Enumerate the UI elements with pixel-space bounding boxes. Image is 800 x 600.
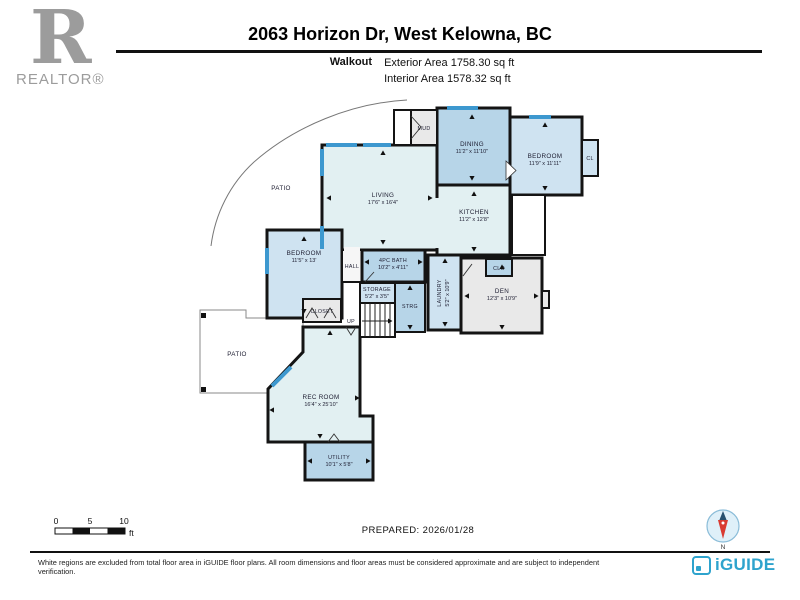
room-dims-utility: 10'1" x 5'8"	[325, 462, 352, 468]
room-label-living: LIVING	[372, 192, 394, 199]
room-label-bedroom-lower: BEDROOM	[287, 250, 322, 257]
room-bath: 4PC BATH 10'2" x 4'11"	[362, 250, 425, 282]
excluded-area-right-of-kitchen	[512, 195, 545, 255]
room-dims-rec: 16'4" x 25'10"	[304, 402, 337, 408]
room-bedroom-upper: BEDROOM 11'9" x 11'11"	[510, 117, 582, 195]
room-mud: MUD	[411, 110, 437, 145]
room-label-strg: STRG	[402, 304, 418, 310]
footer-divider	[30, 551, 770, 553]
prepared-date: PREPARED: 2026/01/28	[18, 525, 800, 536]
room-label-bath: 4PC BATH	[379, 258, 407, 264]
room-dims-kitchen: 11'2" x 12'8"	[459, 217, 489, 223]
room-dims-bath: 10'2" x 4'11"	[378, 265, 408, 271]
room-dims-bedroom-lower: 11'5" x 13'	[292, 258, 317, 264]
room-label-patio-lower: PATIO	[227, 351, 246, 358]
room-dining: DINING 11'2" x 11'10"	[437, 108, 510, 185]
room-dims-bedroom-upper: 11'9" x 11'11"	[529, 161, 561, 167]
iguide-logo-text: iGUIDE	[715, 555, 775, 575]
compass-north-label: N	[721, 544, 726, 551]
room-label-bedroom-upper: BEDROOM	[528, 153, 563, 160]
room-label-kitchen: KITCHEN	[459, 209, 489, 216]
room-dims-storage: 5'2" x 3'5"	[365, 294, 389, 300]
room-label-laundry: LAUNDRY	[437, 279, 443, 306]
entry-excluded-area	[394, 110, 411, 145]
room-hall: HALL	[342, 250, 362, 282]
room-label-storage: STORAGE	[363, 287, 391, 293]
room-dims-den: 12'3" x 10'9"	[487, 296, 517, 302]
room-label-hall: HALL	[345, 264, 359, 270]
room-label-rec: REC ROOM	[302, 394, 339, 401]
room-dims-living: 17'6" x 16'4"	[368, 200, 398, 206]
room-label-utility: UTILITY	[328, 455, 350, 461]
room-label-dining: DINING	[460, 141, 484, 148]
iguide-logo: iGUIDE	[692, 555, 775, 575]
room-label-cl: CL	[586, 156, 593, 162]
stairs-up-label: UP	[347, 319, 355, 325]
room-laundry: LAUNDRY 5'2" x 10'9"	[428, 255, 461, 330]
room-closet: CLOSET	[303, 299, 341, 322]
iguide-icon	[692, 556, 711, 575]
room-label-patio-upper: PATIO	[271, 185, 290, 192]
room-strg: STRG	[395, 283, 425, 332]
room-clo: CLO	[486, 259, 512, 276]
footer-disclaimer: White regions are excluded from total fl…	[38, 558, 638, 576]
room-dims-dining: 11'2" x 11'10"	[456, 149, 488, 155]
room-cl: CL	[582, 140, 598, 176]
room-label-den: DEN	[495, 288, 509, 295]
floor-plan-drawing: PATIO PATIO LIVING 17'6" x 16'4" DINING …	[0, 0, 800, 600]
room-storage: STORAGE 5'2" x 3'5"	[360, 283, 395, 303]
room-utility: UTILITY 10'1" x 5'8"	[305, 442, 373, 480]
room-dims-laundry: 5'2" x 10'9"	[445, 279, 451, 306]
